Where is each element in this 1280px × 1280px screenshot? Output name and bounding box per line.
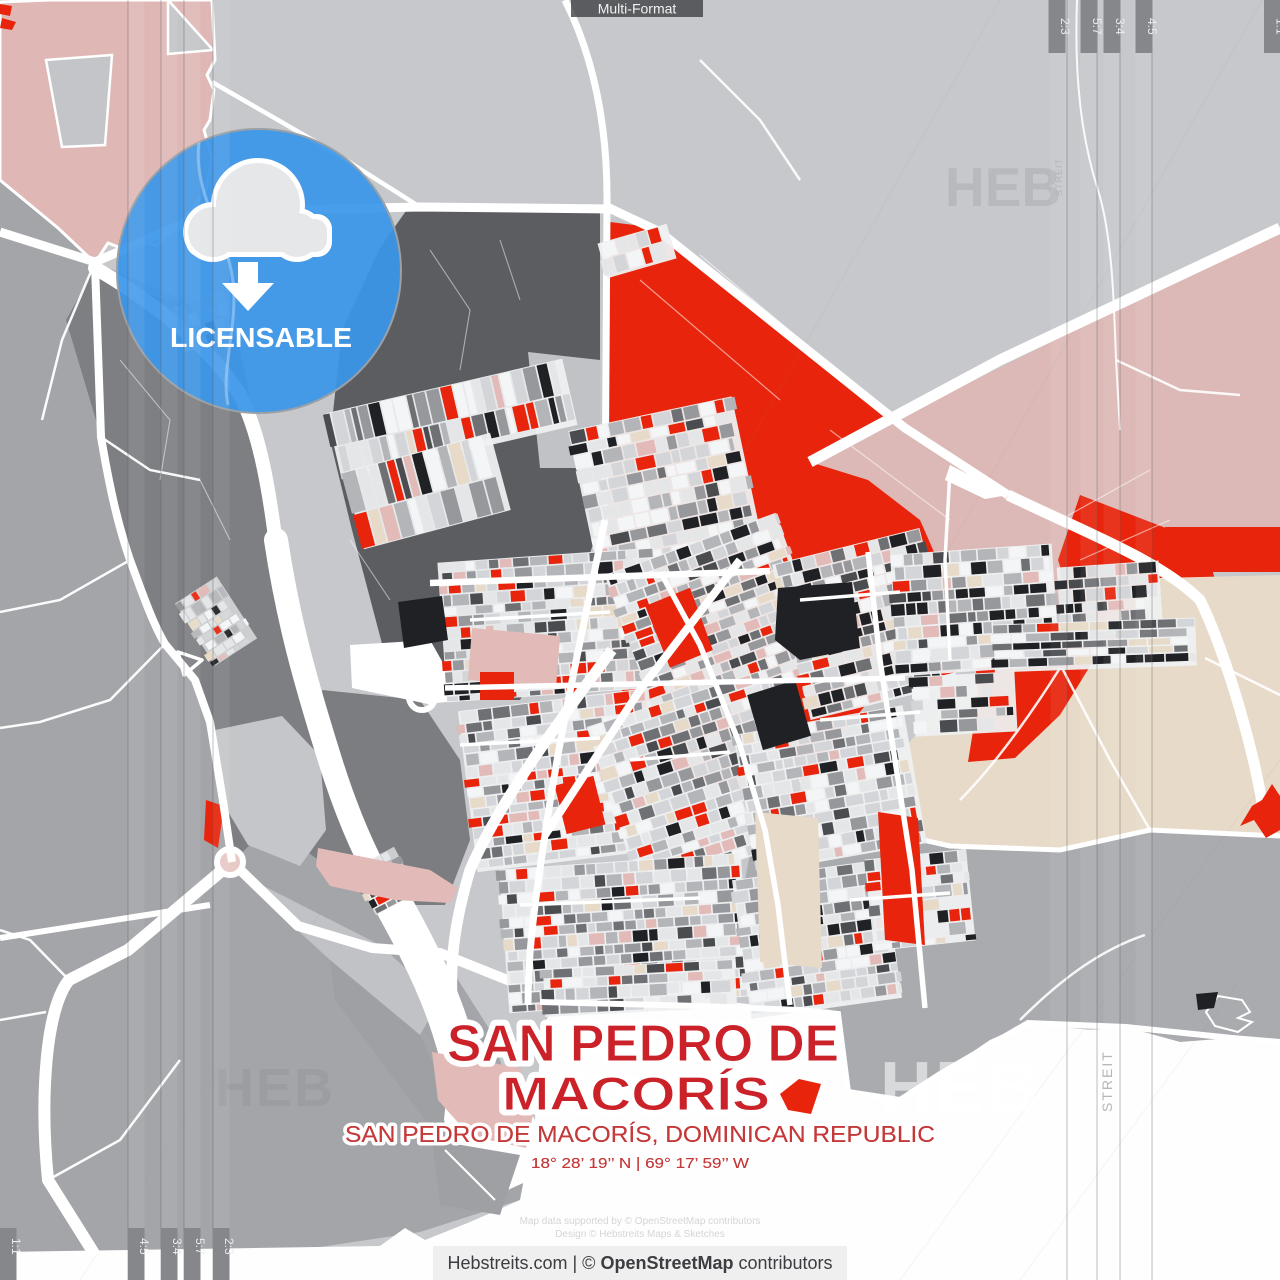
- svg-text:2:3: 2:3: [222, 1238, 236, 1255]
- svg-text:HEB: HEB: [880, 1048, 1041, 1128]
- svg-text:4:5: 4:5: [137, 1238, 151, 1255]
- svg-text:Design © Hebstreits Maps & Ske: Design © Hebstreits Maps & Sketches: [555, 1229, 725, 1240]
- svg-text:HEB: HEB: [945, 156, 1061, 218]
- svg-text:SAN PEDRO DE MACORÍS, DOMINICA: SAN PEDRO DE MACORÍS, DOMINICAN REPUBLIC: [345, 1121, 935, 1147]
- svg-text:4:5: 4:5: [1145, 18, 1159, 35]
- svg-text:Multi-Format: Multi-Format: [598, 1, 677, 17]
- svg-text:SAN PEDRO DE: SAN PEDRO DE: [447, 1015, 839, 1073]
- svg-text:18° 28’ 19’’ N | 69° 17’: 18° 28’ 19’’ N | 69° 17’ 59’’ W: [531, 1155, 750, 1172]
- svg-text:Map data supported by © OpenSt: Map data supported by © OpenStreetMap co…: [520, 1216, 761, 1227]
- svg-text:MACORÍS: MACORÍS: [502, 1067, 770, 1120]
- svg-text:1:1: 1:1: [9, 1238, 23, 1255]
- svg-text:HEB: HEB: [215, 1058, 335, 1118]
- svg-text:5:7: 5:7: [193, 1238, 207, 1255]
- svg-text:3:4: 3:4: [1113, 18, 1127, 35]
- svg-text:2:3: 2:3: [1058, 18, 1072, 35]
- svg-text:Hebstreits.com | © OpenStreetM: Hebstreits.com | © OpenStreetMap contrib…: [447, 1253, 832, 1273]
- svg-text:5:7: 5:7: [1090, 18, 1104, 35]
- svg-text:3:4: 3:4: [170, 1238, 184, 1255]
- svg-text:1:1: 1:1: [1274, 18, 1280, 35]
